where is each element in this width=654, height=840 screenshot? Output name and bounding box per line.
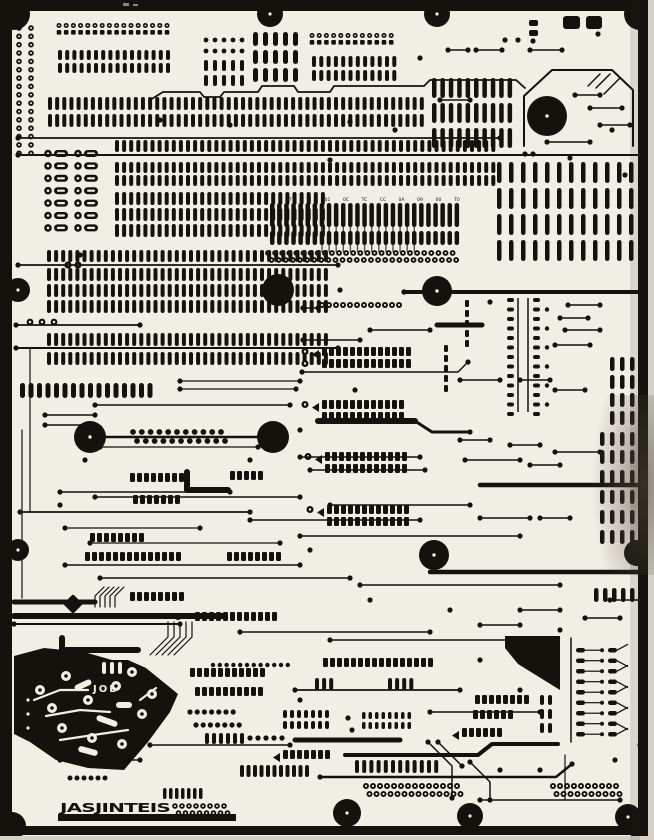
tr (168, 622, 186, 655)
tr (87, 540, 282, 545)
dip-footprint (130, 473, 184, 482)
tr (507, 442, 542, 447)
pad-band (47, 352, 328, 365)
tr (412, 418, 472, 434)
ground-plane (14, 648, 178, 770)
tr (13, 345, 340, 350)
tr (17, 509, 252, 514)
tr (62, 525, 202, 530)
dip-footprint (195, 687, 263, 696)
pad-band (205, 733, 244, 744)
mounting-hole (419, 540, 449, 570)
tr (597, 122, 632, 127)
pad-band (355, 760, 438, 773)
svg-text:TC: TC (361, 197, 368, 203)
svg-text:JASJINTEIS: JASJINTEIS (58, 801, 170, 815)
svg-text:1: 1 (271, 197, 274, 203)
corner-blob (0, 812, 26, 840)
border-bottom (0, 826, 654, 835)
pad-row (310, 33, 394, 45)
hole-pad-rows (172, 803, 230, 816)
paper-margin-bottom (0, 836, 654, 840)
tr (527, 462, 562, 467)
dip-footprint (302, 400, 405, 412)
dip-footprint (85, 552, 181, 561)
scan-shadow (585, 395, 654, 575)
border-top (0, 0, 654, 11)
top-film-mark (123, 3, 129, 6)
tr (97, 444, 260, 449)
tr (552, 342, 592, 347)
pad-band (253, 32, 298, 82)
edge-connector-pads (44, 150, 98, 232)
tr (367, 327, 432, 332)
mounting-hole (257, 421, 289, 453)
dip-footprint (307, 505, 410, 517)
tr (537, 515, 572, 520)
tr (517, 607, 562, 612)
corner-blob (0, 0, 30, 30)
mounting-hole (262, 274, 294, 306)
dip-footprint (444, 345, 448, 392)
tr (15, 262, 340, 267)
tr (177, 386, 298, 391)
tr (150, 622, 168, 655)
dip-footprint (327, 517, 409, 526)
mounting-bump (424, 1, 450, 27)
dip-footprint (273, 750, 330, 762)
pad-grid (204, 38, 245, 54)
dip-footprint (190, 668, 265, 677)
connector-hole-pads (265, 250, 459, 263)
copper-wedge (505, 636, 560, 690)
tr (42, 412, 97, 417)
tr (162, 622, 180, 655)
via-row (247, 735, 284, 740)
tr (572, 92, 602, 97)
tr (15, 152, 650, 157)
plane-side-pads (24, 710, 33, 719)
mounting-hole (527, 96, 567, 136)
hole-pad-rows (363, 783, 464, 797)
pad-ladder (507, 298, 549, 416)
svg-text:0A: 0A (399, 197, 406, 203)
pad-band (163, 788, 203, 799)
svg-text:JOL: JOL (92, 684, 118, 695)
via-row (134, 438, 228, 444)
tr (477, 515, 532, 520)
tr (177, 378, 302, 383)
discrete-pad-rows (576, 644, 628, 736)
via-row (187, 709, 235, 714)
tr (582, 615, 622, 620)
pad-band (315, 678, 333, 690)
dip-footprint (305, 452, 408, 464)
dip-footprint (90, 533, 144, 542)
svg-text:T: T (288, 197, 292, 203)
tr (15, 135, 502, 140)
mounting-hole (422, 276, 452, 306)
hole-pad-rows (550, 783, 623, 797)
mounting-bump (257, 1, 283, 27)
tr (92, 494, 302, 499)
tr (457, 377, 502, 382)
pad-band (312, 56, 396, 81)
pad-band (240, 765, 309, 777)
pin-pad (529, 30, 538, 36)
tr (462, 457, 522, 462)
pad-row (57, 23, 170, 35)
pcb-photomask-scan: Scanned printed circuit board photomask … (0, 0, 654, 840)
top-film-mark (133, 4, 138, 6)
logo-underbar (58, 814, 236, 821)
tr (11, 621, 182, 626)
mounting-bump (333, 799, 361, 827)
tr (565, 302, 602, 307)
tr (477, 797, 622, 802)
tr (557, 315, 590, 320)
plane-side-pads (24, 696, 33, 705)
pad-band (362, 712, 411, 729)
svg-text:0C: 0C (343, 197, 349, 203)
smd-pad (563, 16, 580, 29)
bottom-logotype: JASJINTEIS (58, 801, 170, 815)
pad-band (48, 97, 424, 127)
pad-row (319, 302, 402, 308)
tr (477, 622, 522, 627)
tr (62, 562, 302, 567)
smd-pad (586, 16, 602, 29)
pcb-artwork: Scanned printed circuit board photomask … (0, 0, 654, 840)
tr (527, 47, 564, 52)
pad-band (388, 678, 413, 690)
tr (174, 622, 192, 655)
pad-band (47, 333, 328, 346)
pad-band (204, 60, 244, 86)
tr (445, 47, 470, 52)
pad-band (115, 162, 495, 186)
pad-band (497, 162, 634, 261)
tr (457, 437, 492, 442)
dip-footprint (230, 471, 263, 480)
tr (187, 472, 228, 490)
mounting-hole (74, 421, 106, 453)
svg-text:01: 01 (325, 197, 331, 203)
dip-footprint (227, 552, 281, 561)
pad-band (115, 140, 495, 152)
tr (588, 74, 600, 86)
tr (517, 377, 552, 382)
tr (345, 744, 558, 755)
plane-marking-text: JOL (92, 684, 118, 695)
pad-band (283, 710, 329, 729)
tr (156, 622, 174, 655)
svg-text:T0: T0 (453, 197, 460, 203)
tr (297, 533, 522, 538)
pin-pad (529, 20, 538, 26)
scan-shadow-edge (630, 0, 640, 840)
tr (327, 637, 522, 642)
tr (437, 97, 472, 102)
tr (62, 638, 138, 650)
tr (587, 105, 624, 110)
svg-text:09: 09 (417, 197, 423, 203)
via-diamond (63, 594, 83, 614)
tr (92, 402, 292, 407)
svg-text:CC: CC (380, 197, 386, 203)
tr (357, 582, 562, 587)
mounting-bump (7, 539, 29, 561)
dip-footprint (130, 592, 184, 601)
connector-pads (270, 231, 459, 245)
connector-pin-numbers: 1TCI010CTCCC0A0900T0 (271, 197, 460, 203)
dip-footprint (452, 728, 502, 740)
svg-text:CI: CI (307, 197, 311, 203)
dip-footprint (475, 695, 529, 704)
mounting-bump (6, 278, 30, 302)
dip-footprint (325, 464, 407, 473)
tr (562, 327, 602, 332)
via-row (193, 722, 241, 727)
border-left (0, 0, 12, 840)
mounting-bump (457, 803, 483, 829)
via-row (211, 663, 290, 667)
dip-footprint (323, 658, 433, 667)
pad-band (20, 383, 153, 398)
pad-band (540, 695, 552, 733)
tr (544, 139, 592, 144)
connector-pads (270, 203, 459, 227)
tr (467, 759, 492, 802)
pad-band (58, 50, 170, 73)
tr (97, 575, 352, 580)
svg-text:00: 00 (436, 197, 442, 203)
tr (237, 629, 432, 634)
tr (552, 387, 587, 392)
via-row (130, 429, 224, 435)
plane-side-pads (24, 724, 33, 733)
tr (604, 78, 620, 94)
tr (473, 47, 504, 52)
via-row (68, 776, 108, 781)
